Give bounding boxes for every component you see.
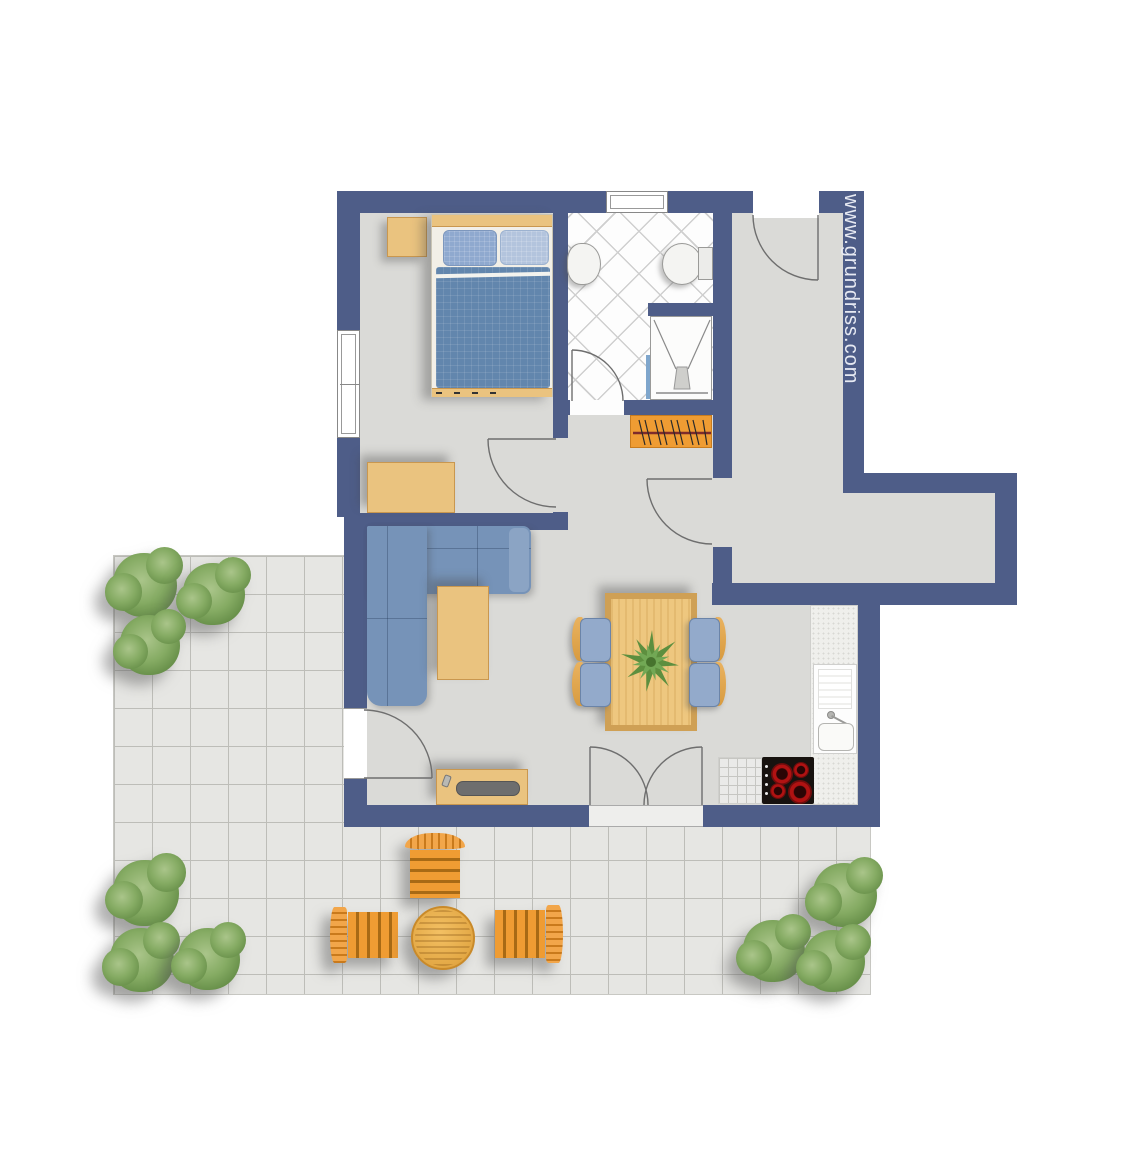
wall-bath-corridor	[713, 213, 732, 478]
bush-plant	[178, 928, 240, 990]
bedroom-window	[337, 330, 360, 438]
terrace-chair-seat	[410, 850, 460, 898]
bed-footboard	[432, 388, 552, 397]
tv-board	[436, 769, 528, 805]
shower	[650, 316, 712, 400]
corner-sofa-chaise	[367, 526, 427, 706]
terrace-chair-back	[405, 833, 465, 849]
terrace-chair-seat	[348, 912, 398, 958]
wardrobe	[630, 415, 712, 448]
coffee-table	[437, 586, 489, 680]
pillow-left	[443, 230, 497, 266]
wall-corridor-low	[713, 547, 732, 605]
cooktop-knob	[765, 792, 768, 795]
bush-plant	[113, 860, 179, 926]
window-transom	[340, 384, 359, 385]
terrace-chair-back	[330, 907, 347, 963]
kitchen-counter-grid	[718, 757, 762, 804]
nightstand	[387, 217, 427, 257]
window-frame	[610, 195, 664, 209]
bush-plant	[120, 615, 180, 675]
sink-basin	[818, 723, 854, 751]
chair-seat	[689, 618, 720, 662]
terrace-door-opening	[344, 708, 367, 779]
wall-alcove-top	[843, 473, 1017, 493]
floor-plan: www.grundriss.com	[0, 0, 1122, 1152]
burner	[770, 783, 786, 799]
wall-kitchen-right	[858, 605, 880, 827]
kitchen-sink-unit	[813, 664, 857, 754]
bathroom-window	[606, 191, 668, 213]
dining-chair	[572, 617, 608, 661]
chair-seat	[689, 663, 720, 707]
cooktop-knob	[765, 774, 768, 777]
terrace-chair	[405, 833, 465, 898]
wall-left-living	[344, 513, 367, 827]
dining-chair	[690, 662, 726, 706]
pillow-right	[500, 230, 549, 265]
cooktop-knob	[765, 783, 768, 786]
wall-alcove-bottom	[712, 583, 1017, 605]
bush-plant	[803, 930, 865, 992]
burner	[793, 762, 809, 778]
watermark-text: www.grundriss.com	[839, 194, 862, 384]
toilet-tank	[698, 247, 713, 280]
chair-seat	[580, 618, 611, 662]
double-bed	[431, 214, 553, 397]
terrace-chair	[495, 905, 563, 963]
dining-table	[605, 593, 697, 731]
dining-chair	[572, 662, 608, 706]
dresser	[367, 462, 455, 513]
entrance-door-opening	[753, 191, 819, 218]
bush-plant	[183, 563, 245, 625]
terrace-chair	[330, 907, 398, 963]
remote-control	[441, 774, 452, 788]
bush-plant	[110, 928, 174, 992]
burner	[771, 763, 793, 785]
bush-plant	[813, 863, 877, 927]
chair-seat	[580, 663, 611, 707]
sofa-armrest	[509, 528, 529, 592]
bed-headboard	[432, 215, 552, 227]
terrace-chair-seat	[495, 910, 545, 958]
french-door-opening	[589, 805, 703, 827]
alcove-floor	[843, 493, 995, 583]
hall-door-opening	[713, 478, 732, 547]
burner	[788, 780, 812, 804]
cooktop	[762, 757, 814, 804]
tv-screen	[456, 781, 520, 796]
toilet-bowl	[662, 243, 702, 285]
toilet	[662, 243, 713, 285]
bedroom-door-opening	[553, 438, 568, 512]
sink-drainboard	[818, 669, 852, 709]
dining-chair	[690, 617, 726, 661]
wall-shower-stub	[648, 303, 713, 316]
shower-glass-door	[646, 355, 650, 399]
washbasin	[567, 243, 601, 285]
table-plant	[613, 624, 689, 700]
cooktop-knob	[765, 765, 768, 768]
bed-blanket	[436, 267, 550, 388]
bathroom-door-opening	[570, 400, 624, 415]
sheet-fold	[436, 272, 550, 278]
terrace-round-table	[411, 906, 475, 970]
bush-plant	[113, 553, 177, 617]
terrace-chair-back	[546, 905, 563, 963]
